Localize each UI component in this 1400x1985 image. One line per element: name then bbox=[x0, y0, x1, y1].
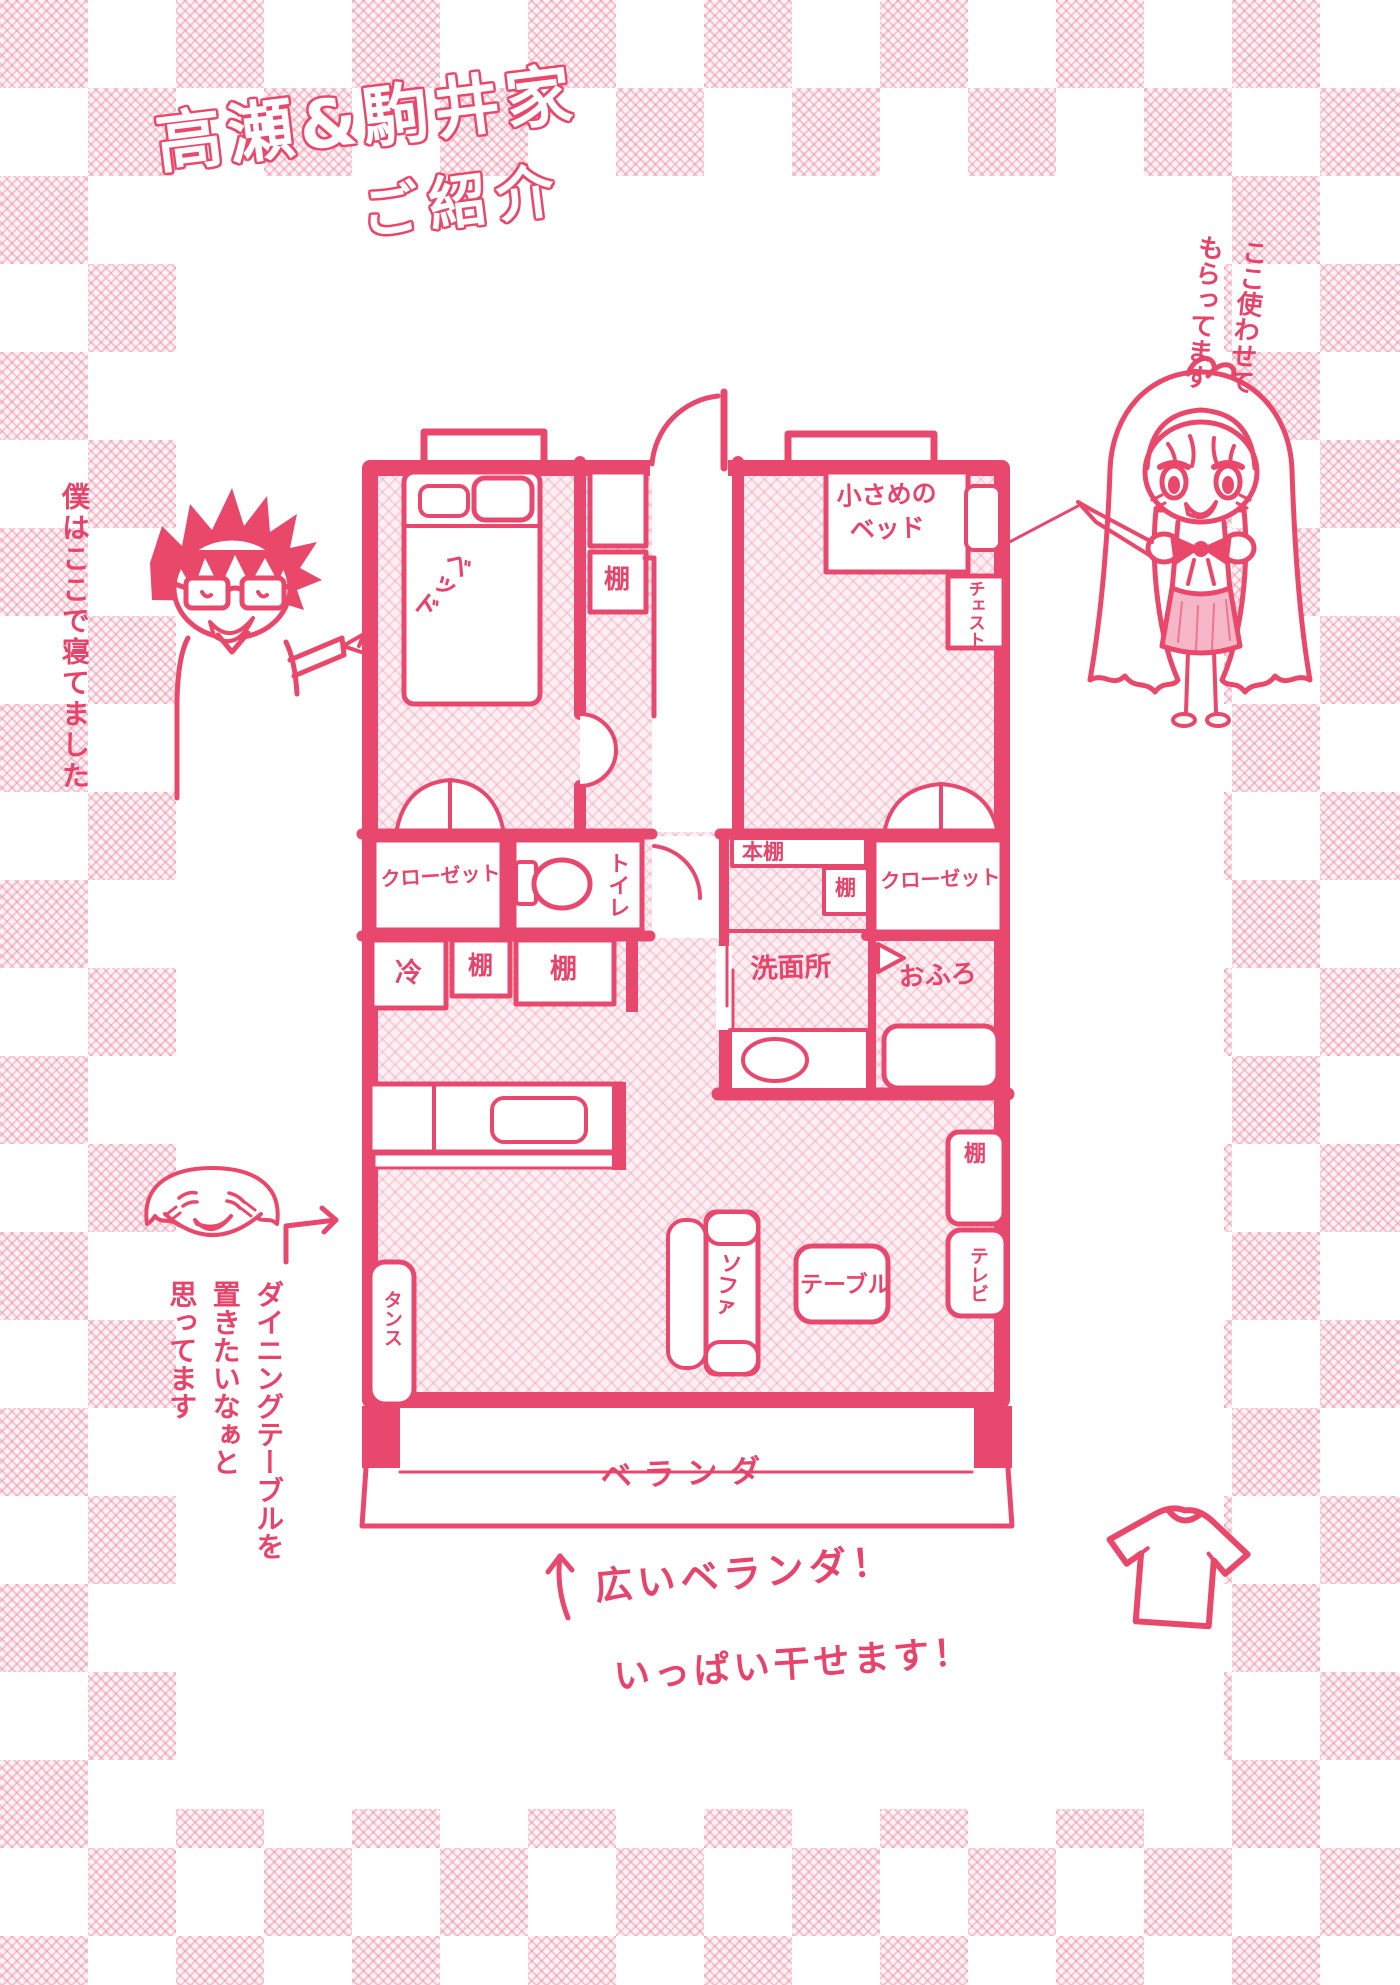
label-small-bed-line2: ベッド bbox=[849, 510, 938, 547]
bedroom2-window-bay bbox=[788, 434, 934, 464]
dining-note: ダイニングテーブルを 置きたいなぁと 思ってます bbox=[160, 1280, 290, 1710]
label-kitchen-shelf1: 棚 bbox=[468, 952, 493, 981]
label-table: テーブル bbox=[800, 1272, 891, 1298]
label-chest: チェスト bbox=[964, 580, 984, 650]
bedroom1-window-bay bbox=[424, 432, 544, 464]
mother-face bbox=[125, 1162, 300, 1262]
bathtub bbox=[884, 1026, 998, 1088]
dining-note-line1: ダイニングテーブルを bbox=[247, 1280, 290, 1710]
label-closet-right: クローゼット bbox=[880, 866, 1001, 893]
label-small-bed: 小さめの ベッド bbox=[836, 477, 938, 548]
label-fridge: 冷 bbox=[395, 958, 422, 989]
label-living-shelf: 棚 bbox=[964, 1142, 986, 1167]
label-veranda: ベランダ bbox=[600, 1454, 773, 1496]
manga-bonus-page: 高瀬&駒井家 ご紹介 bbox=[0, 0, 1400, 1985]
kitchen-counter bbox=[370, 1082, 626, 1170]
washroom-sink bbox=[730, 1030, 868, 1090]
label-toilet: トイレ bbox=[604, 852, 629, 932]
balcony-arrow-icon bbox=[548, 1556, 572, 1618]
label-hall-shelf: 棚 bbox=[604, 566, 630, 596]
label-bath: おふろ bbox=[898, 960, 977, 994]
label-washroom: 洗面所 bbox=[750, 951, 832, 985]
dining-note-line2: 置きたいなぁと bbox=[203, 1280, 246, 1710]
boy-note: 僕はここで寝てました bbox=[54, 482, 94, 827]
entrance-door bbox=[650, 392, 728, 482]
closet-left-doors bbox=[396, 780, 504, 834]
label-shelf-right: 棚 bbox=[835, 876, 856, 900]
boy-character bbox=[90, 468, 370, 808]
label-kitchen-shelf2: 棚 bbox=[550, 954, 577, 985]
closet-right-doors bbox=[884, 784, 998, 834]
label-small-bed-line1: 小さめの bbox=[836, 477, 937, 514]
dining-note-line3: 思ってます bbox=[160, 1280, 203, 1710]
label-tansu: タンス bbox=[380, 1290, 402, 1395]
label-tv: テレビ bbox=[966, 1246, 988, 1326]
label-bookshelf: 本棚 bbox=[742, 840, 784, 864]
tshirt-icon bbox=[1087, 1490, 1268, 1654]
